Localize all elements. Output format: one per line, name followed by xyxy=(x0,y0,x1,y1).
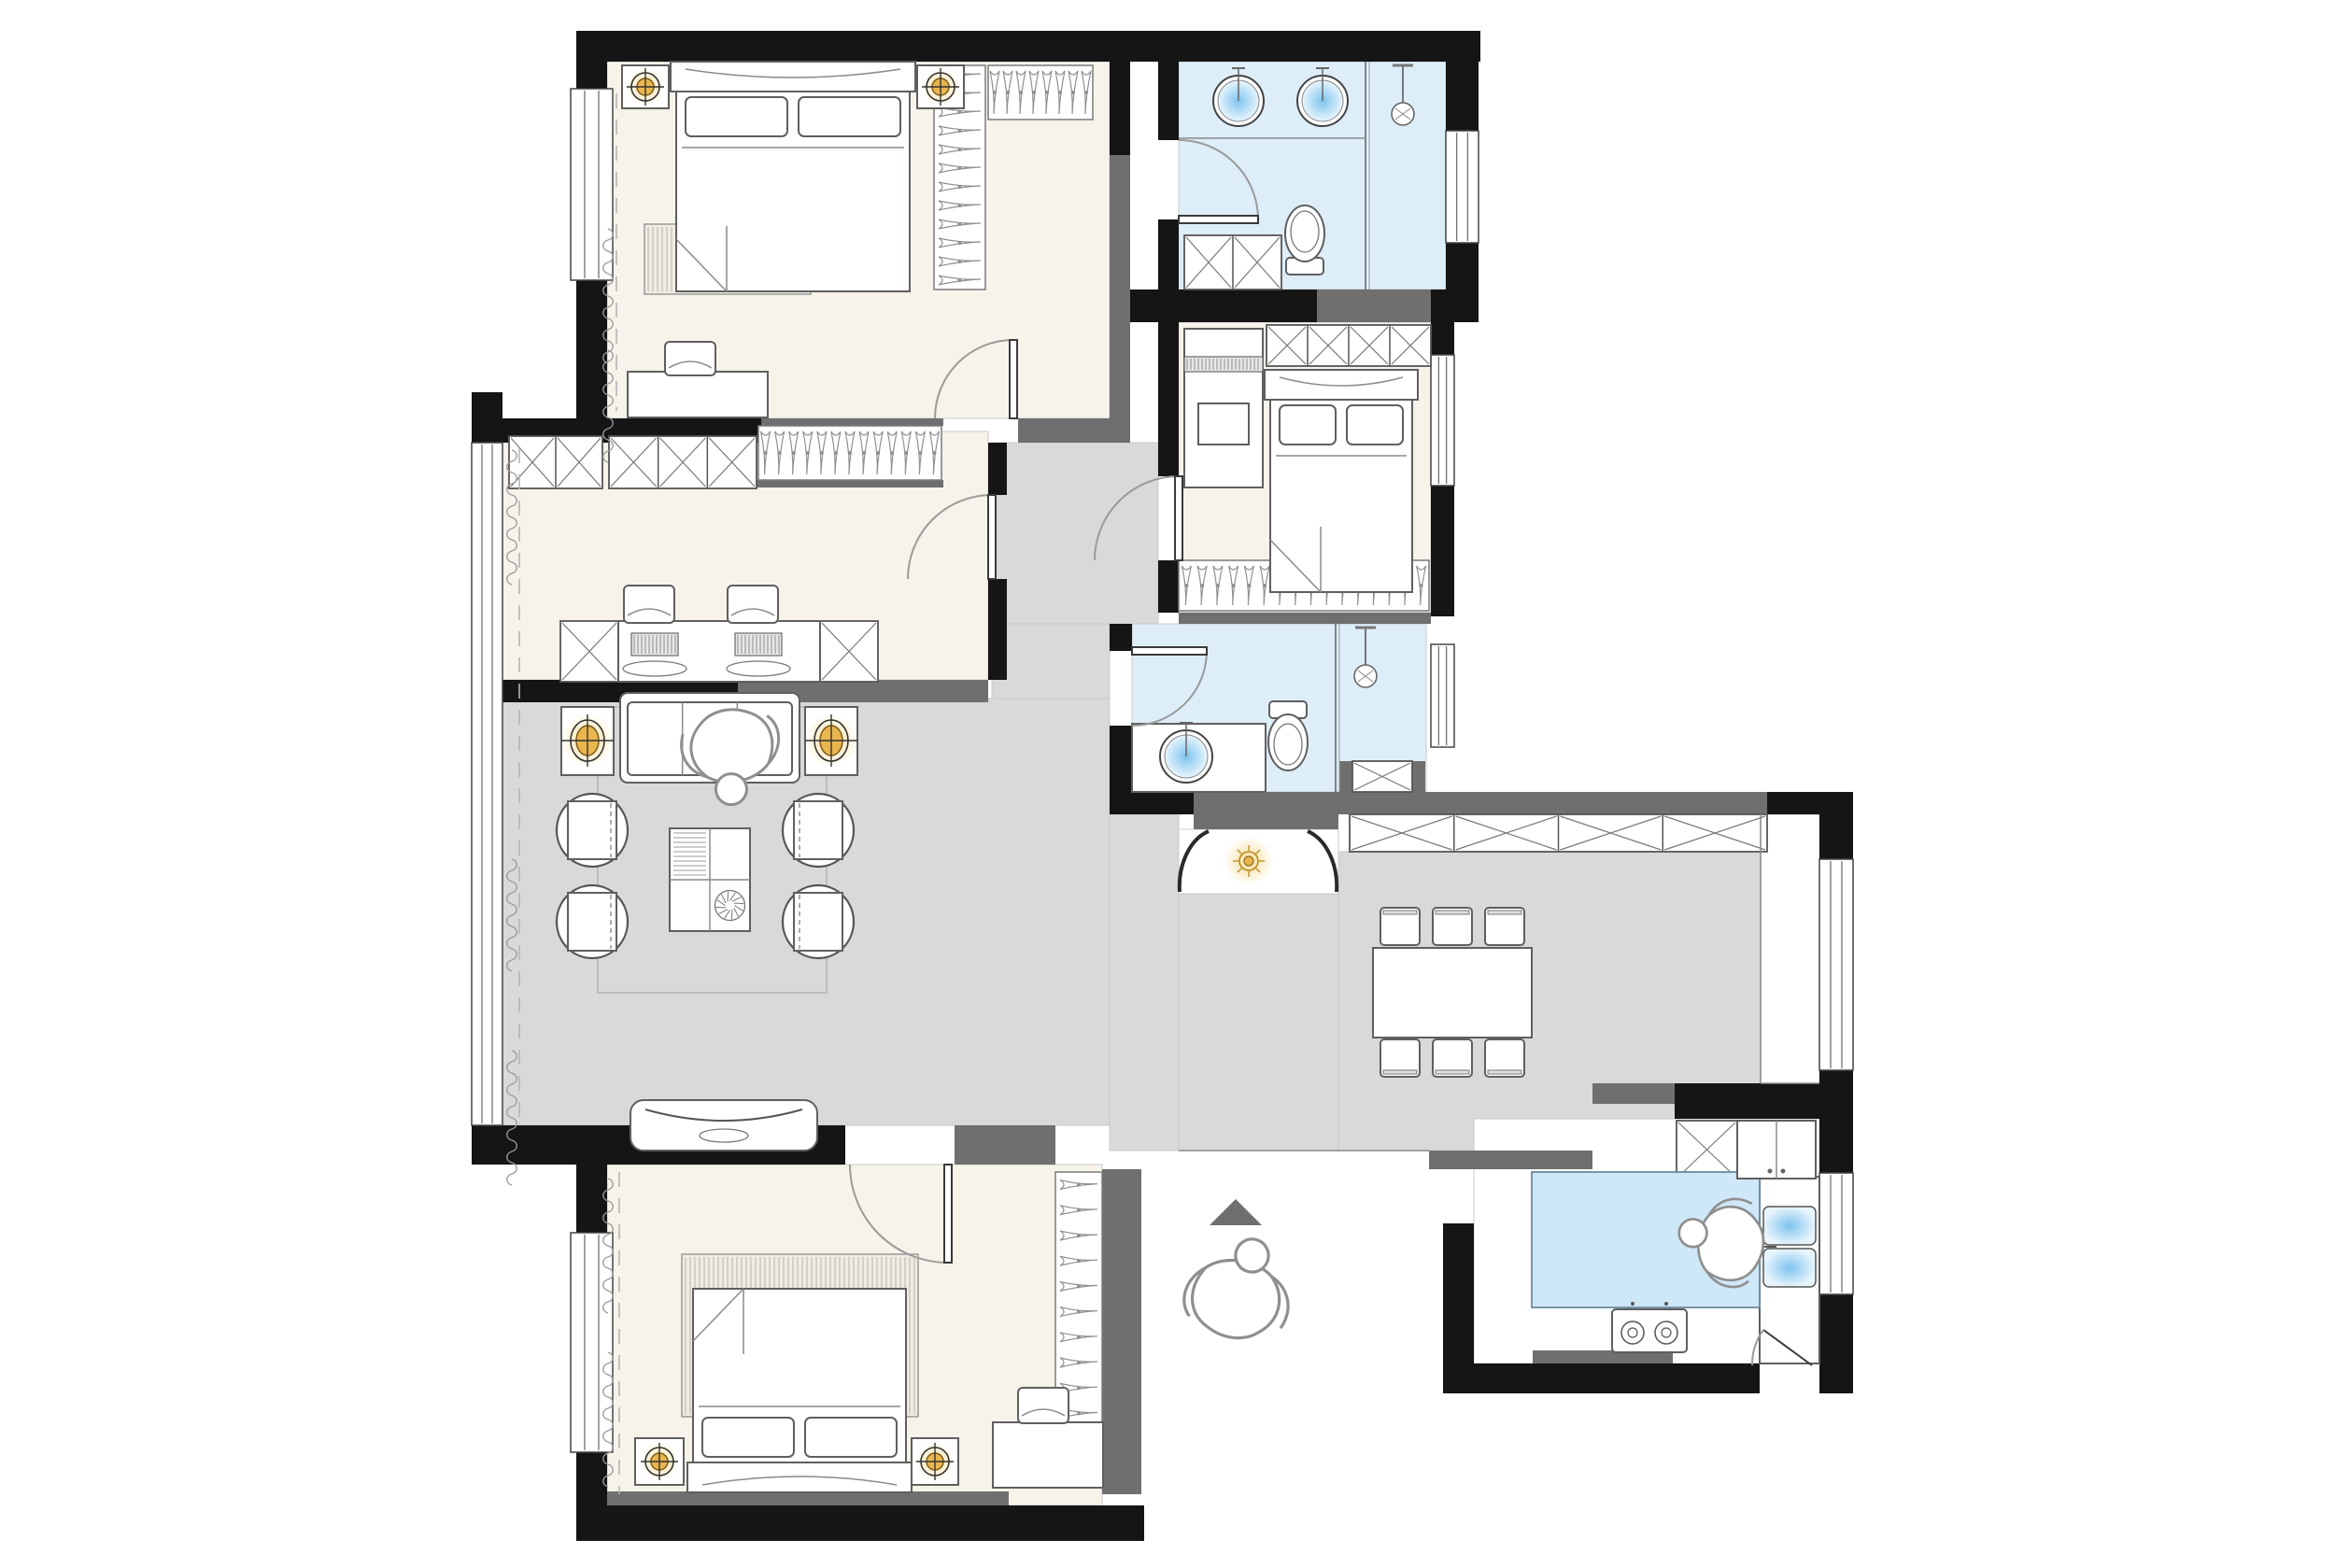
wall-black-15 xyxy=(1110,726,1132,792)
wall-black-13 xyxy=(1110,792,1194,814)
wall-black-19 xyxy=(1158,62,1179,140)
wall-black-17 xyxy=(1431,290,1479,322)
wall-black-26 xyxy=(988,443,1007,495)
bedroom3-light-left xyxy=(641,1443,678,1480)
wall-gray-16 xyxy=(1412,761,1425,792)
dining-window xyxy=(1819,859,1853,1070)
wall-black-12 xyxy=(1767,792,1853,814)
wall-black-20 xyxy=(1158,219,1179,290)
wall-gray-6 xyxy=(1194,792,1338,829)
wall-black-3 xyxy=(472,392,502,443)
gas-stove xyxy=(1612,1302,1687,1352)
balcony-window xyxy=(472,443,502,1125)
bath1-window xyxy=(1446,131,1479,243)
bath1-toilet xyxy=(1285,205,1324,275)
wall-black-27 xyxy=(988,579,1007,680)
wall-black-21 xyxy=(1110,62,1130,155)
master-light-right xyxy=(922,68,959,106)
living-lamp-left xyxy=(561,714,614,767)
living-armchair-2 xyxy=(557,885,628,958)
wall-black-7 xyxy=(576,1505,1144,1541)
master-light-left xyxy=(627,68,664,106)
bedroom3-light-right xyxy=(916,1443,954,1480)
study-chair-right xyxy=(728,586,778,623)
bedroom2-dresser-seat xyxy=(1198,403,1249,445)
wall-gray-0 xyxy=(1018,418,1110,443)
wall-black-24 xyxy=(1158,560,1179,613)
master-bed xyxy=(671,62,915,291)
corridor-floor xyxy=(992,443,1158,624)
wall-gray-4 xyxy=(1429,1151,1592,1169)
bath2-window xyxy=(1431,644,1454,747)
wall-black-8 xyxy=(1675,1083,1837,1119)
entry-arrow xyxy=(1210,1199,1262,1225)
bath2-toilet xyxy=(1268,701,1308,770)
master-window xyxy=(571,89,613,280)
living-armchair-1 xyxy=(557,794,628,867)
person-at-entry xyxy=(1177,1225,1304,1349)
kitchen-tall-cabinet xyxy=(1677,1121,1737,1179)
dining-table xyxy=(1373,948,1532,1038)
wall-black-0 xyxy=(576,31,1480,62)
master-desk-chair xyxy=(665,342,715,375)
wall-gray-15 xyxy=(1339,761,1352,792)
dining-chair-5 xyxy=(1433,1039,1472,1077)
living-lamp-right xyxy=(805,714,857,767)
bedroom2-dresser-fringe xyxy=(1184,357,1263,372)
bedroom3-desk xyxy=(993,1422,1103,1488)
study-desk-cabinet-right xyxy=(820,621,878,682)
corridor2-floor xyxy=(992,624,1110,699)
dining-chair-2 xyxy=(1433,908,1472,945)
study-cabinet-a xyxy=(509,436,602,488)
master-desk xyxy=(628,372,768,417)
dining-side-strip xyxy=(1761,814,1819,1083)
bedroom2-window xyxy=(1431,355,1454,486)
wall-gray-10 xyxy=(1592,1083,1675,1104)
hall2-floor xyxy=(1179,894,1338,1151)
wall-gray-5 xyxy=(1338,792,1767,814)
study-cabinet-b xyxy=(609,436,757,488)
study-desk-cabinet-left xyxy=(560,621,618,682)
study-closet-rail xyxy=(758,426,941,480)
study-chair-left xyxy=(624,586,674,623)
nook-ceiling-light xyxy=(1224,837,1273,885)
bedroom2-overhead-cabinet xyxy=(1267,325,1431,366)
kitchen-fridge xyxy=(1737,1121,1816,1179)
study-tray-right xyxy=(727,661,790,676)
wall-gray-2 xyxy=(955,1125,1055,1165)
dining-chair-6 xyxy=(1485,1039,1524,1077)
bedroom3-bed xyxy=(687,1289,912,1492)
wall-black-23 xyxy=(1158,322,1179,476)
wall-gray-8 xyxy=(1317,290,1431,322)
study-keyboard-right xyxy=(735,633,782,656)
master-closet-top-rail xyxy=(988,65,1093,120)
wall-gray-7 xyxy=(1179,613,1431,624)
wall-black-14 xyxy=(1110,624,1132,651)
wall-black-10 xyxy=(1443,1363,1760,1393)
study-tray-left xyxy=(623,661,686,676)
dining-chair-1 xyxy=(1380,908,1420,945)
wall-gray-3 xyxy=(1102,1169,1141,1494)
bedroom2-bed xyxy=(1265,370,1418,592)
dining-chair-3 xyxy=(1485,908,1524,945)
shoe-cabinet xyxy=(1350,814,1767,852)
floorplan-page xyxy=(0,0,2335,1568)
living-armchair-4 xyxy=(783,885,854,958)
wall-black-18 xyxy=(1130,290,1317,322)
study-keyboard-left xyxy=(631,633,678,656)
living-armchair-3 xyxy=(783,794,854,867)
kitchen-window xyxy=(1819,1173,1853,1294)
bedroom3-desk-chair xyxy=(1018,1388,1068,1423)
hall-floor xyxy=(1110,814,1179,1151)
coffee-table xyxy=(670,828,750,931)
tv-console xyxy=(630,1100,817,1151)
bath1-vanity-cabinet xyxy=(1184,235,1281,290)
floorplan-drawing xyxy=(0,0,2335,1568)
wall-gray-11 xyxy=(607,1491,1009,1505)
wall-gray-13 xyxy=(757,418,943,426)
bath2-cabinet xyxy=(1352,761,1412,792)
wall-gray-14 xyxy=(757,480,943,487)
dining-chair-4 xyxy=(1380,1039,1420,1077)
